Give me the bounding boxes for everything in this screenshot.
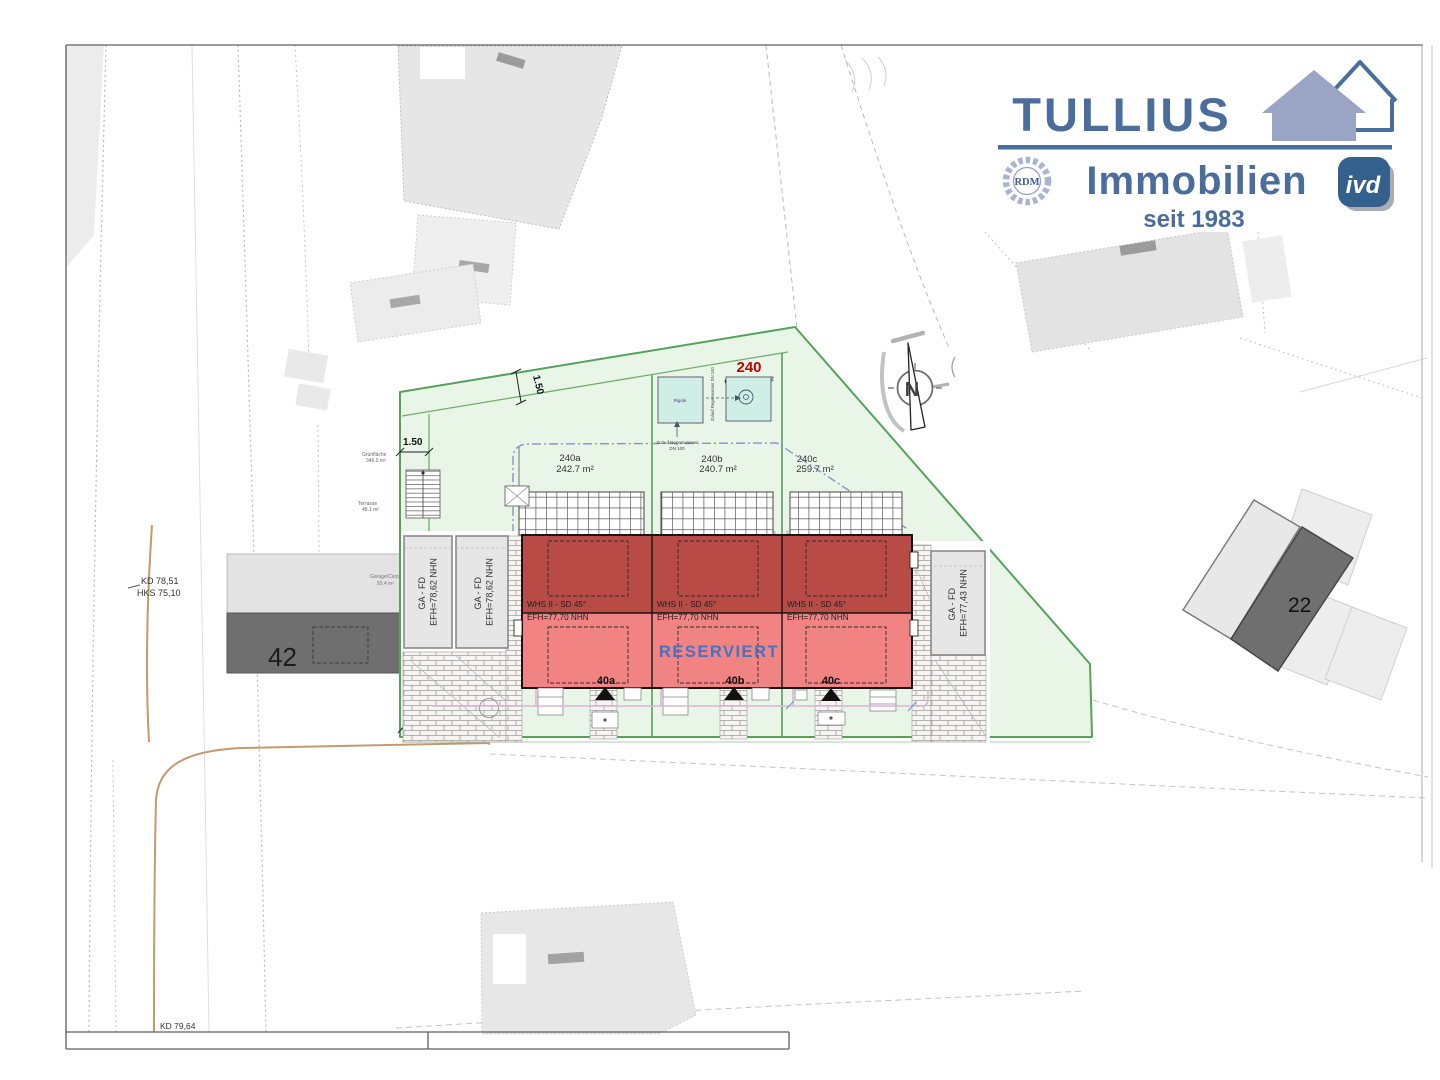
subplot-a-id: 240a [559, 453, 581, 464]
building-notch [420, 47, 465, 79]
brand-division: Immobilien [1086, 159, 1307, 203]
ivd-badge-icon: ivd [1338, 157, 1394, 211]
garage-right: GA - FD EFH=77,43 NHN [931, 551, 985, 655]
neighbor-22: 22 [1183, 489, 1407, 700]
building-notch [493, 934, 526, 984]
inflow-label-line1: Zulauf Regenwasser [656, 440, 698, 445]
compass-arc [952, 357, 955, 377]
parcel-line [1240, 338, 1422, 398]
neighbor-42: 42 Garage/Carport 93.4 m² [227, 554, 405, 673]
house-number-22: 22 [1288, 594, 1311, 617]
parcel-line [841, 45, 950, 350]
small-outbuilding [284, 349, 328, 384]
house-filled-body-icon [1272, 110, 1356, 141]
landing-40a [624, 688, 641, 700]
utility-line [147, 525, 152, 742]
steps-40c [870, 690, 896, 711]
level-label-kd-top: KD 78,51 [141, 576, 179, 586]
dim-label-left: 1.50 [403, 437, 423, 448]
building-42-main [227, 613, 403, 673]
house-40b-number: 40b [726, 675, 745, 687]
level-label-hks: HKS 75,10 [137, 588, 181, 598]
terrace-b-grid [661, 492, 773, 535]
paving-path-right [912, 545, 931, 742]
house-40a-number: 40a [597, 675, 616, 687]
rainwater-basin-label: Rigole [674, 398, 687, 403]
house-40c-number: 40c [822, 675, 840, 687]
north-arrow: N [882, 333, 955, 431]
road-line-right [1093, 700, 1428, 777]
steps-40a [538, 688, 563, 715]
terrace-value: 48.1 m² [362, 507, 379, 513]
inflow-label-line2: DN 100 [669, 446, 685, 451]
brand-rule [998, 145, 1392, 150]
steps-40b [663, 688, 688, 715]
house-40b-level: EFH=77,70 NHN [657, 613, 719, 622]
terrace-c-grid [790, 492, 902, 535]
compass-shadow [882, 352, 904, 431]
garage-level: EFH=78,62 NHN [429, 558, 439, 626]
parcel-line [113, 760, 116, 1032]
street-centerline [192, 45, 209, 1032]
infiltration-shaft [726, 377, 771, 421]
door-marker [514, 620, 522, 636]
landing-40c [795, 690, 807, 700]
level-label-kd-bottom: KD 79,64 [160, 1021, 196, 1031]
shaft-dot-40a [603, 718, 606, 721]
garage-type: GA - FD [947, 588, 957, 621]
carport-note-line2: 93.4 m² [377, 581, 394, 587]
house-40c-type: WHS II - SD 45° [787, 600, 846, 609]
door-marker [910, 552, 918, 568]
rdm-label: RDM [1014, 177, 1039, 188]
green-area-value: 346.0 m² [366, 458, 386, 464]
terrace-a-grid [519, 492, 644, 535]
paving-driveway-right [931, 655, 986, 742]
garage-level: EFH=77,43 NHN [959, 569, 969, 637]
parcel-line [295, 45, 309, 360]
garage-type: GA - FD [473, 577, 483, 610]
parcel-line [1300, 358, 1427, 392]
row-houses-40: WHS II - SD 45° EFH=77,70 NHN WHS II - S… [514, 535, 918, 688]
site-plan-page: KD 78,51 HKS 75,10 KD 79,64 42 Garage/Ca… [0, 0, 1440, 1080]
subplot-b-area: 240.7 m² [699, 464, 737, 475]
garage-left-a: GA - FD EFH=78,62 NHN [404, 536, 452, 648]
logo-panel: TULLIUS RDM Immobilien ivd seit 1983 [980, 42, 1396, 233]
north-label: N [905, 379, 919, 401]
brand-since: seit 1983 [1143, 206, 1244, 233]
site-plan-drawing: KD 78,51 HKS 75,10 KD 79,64 42 Garage/Ca… [0, 0, 1440, 1080]
garage-level: EFH=78,62 NHN [485, 558, 495, 626]
parcel-line [318, 425, 319, 552]
compass-shadow [893, 333, 923, 341]
stairs-start-dot [421, 471, 424, 474]
hatch-marks [845, 57, 886, 92]
house-number-42: 42 [268, 642, 297, 672]
street-edge-right [238, 45, 266, 1032]
exterior-stairs [406, 470, 440, 518]
subplot-c-area: 259.7 m² [796, 464, 834, 475]
reserved-badge: RESERVIERT [659, 643, 779, 661]
inflow-vertical-label: Zulauf Regenwasser DN 100 [710, 367, 715, 421]
plot-number: 240 [736, 359, 761, 376]
house-40a-type: WHS II - SD 45° [527, 600, 586, 609]
small-outbuilding [295, 383, 330, 410]
small-outbuilding [1242, 235, 1291, 302]
shaft-dot-40c [829, 716, 832, 719]
subplot-a-area: 242.7 m² [556, 464, 594, 475]
ivd-label: ivd [1346, 172, 1382, 199]
garage-type: GA - FD [417, 577, 427, 610]
garage-left-b: GA - FD EFH=78,62 NHN [456, 536, 508, 648]
house-40c-level: EFH=77,70 NHN [787, 613, 849, 622]
brand-name: TULLIUS [1012, 88, 1231, 141]
utility-line [154, 743, 490, 1032]
house-40b-type: WHS II - SD 45° [657, 600, 716, 609]
door-marker [910, 620, 918, 636]
parcel-sliver-top-left [66, 45, 104, 268]
road-line-south [490, 754, 1428, 798]
landing-40b [752, 688, 769, 700]
paving-driveway-left [403, 652, 506, 742]
house-40a-level: EFH=77,70 NHN [527, 613, 589, 622]
parcel-line [766, 45, 797, 328]
compass-shadow [932, 384, 949, 387]
